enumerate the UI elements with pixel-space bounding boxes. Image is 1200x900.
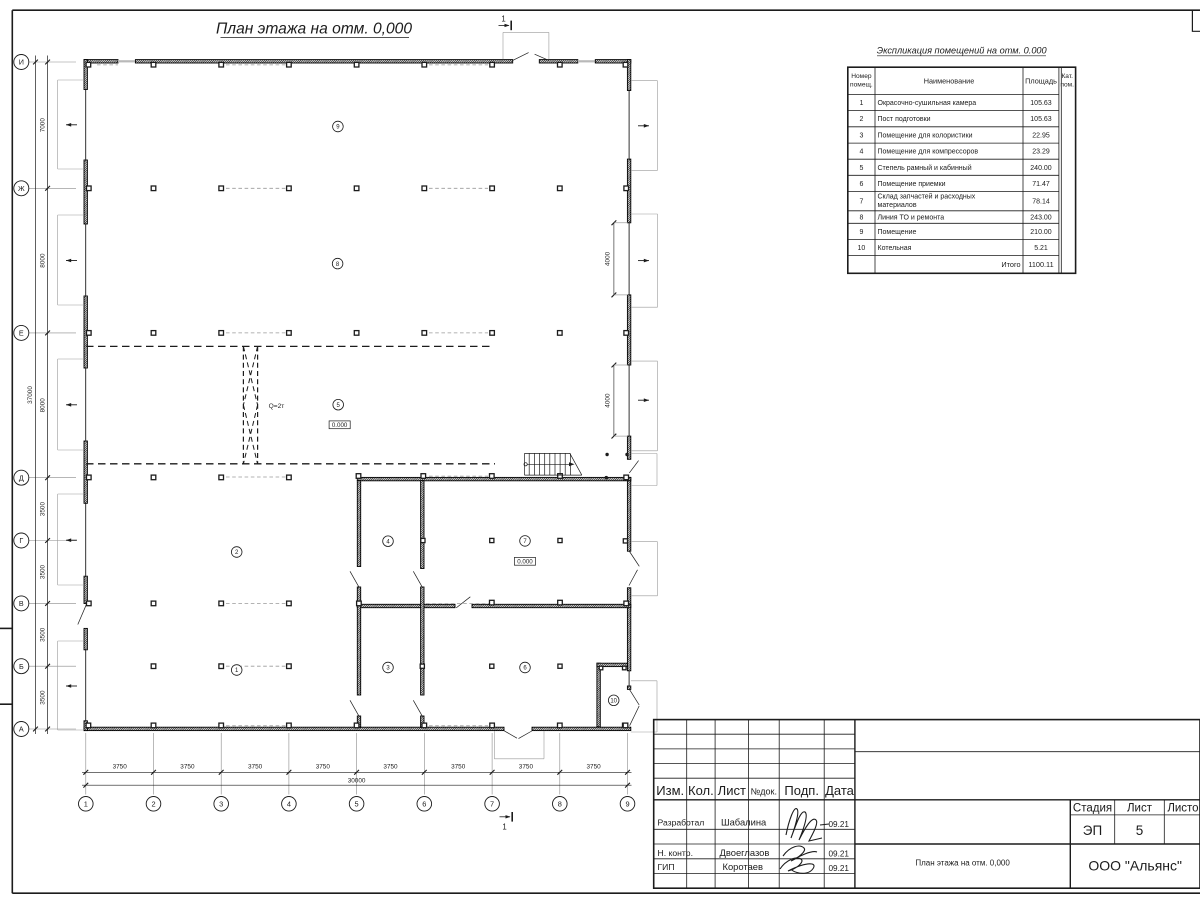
svg-text:Q=2т: Q=2т [269, 403, 285, 410]
svg-text:Помещение: Помещение [878, 229, 917, 236]
svg-text:09.21: 09.21 [829, 850, 850, 859]
svg-text:Склад запчастей и расходных: Склад запчастей и расходных [878, 193, 976, 201]
svg-text:Линия ТО и ремонта: Линия ТО и ремонта [878, 215, 945, 222]
svg-text:3750: 3750 [248, 763, 263, 770]
svg-text:240.00: 240.00 [1030, 165, 1052, 172]
svg-text:4: 4 [859, 149, 863, 156]
svg-text:1: 1 [501, 15, 505, 24]
svg-text:А: А [19, 725, 24, 734]
svg-text:ГИП: ГИП [658, 862, 675, 872]
svg-text:Площадь: Площадь [1025, 77, 1057, 86]
svg-text:78.14: 78.14 [1032, 199, 1050, 206]
svg-text:210.00: 210.00 [1030, 229, 1052, 236]
svg-text:5.21: 5.21 [1034, 245, 1048, 252]
svg-text:Помещение для компрессоров: Помещение для компрессоров [878, 149, 979, 156]
svg-text:7: 7 [859, 199, 863, 206]
svg-text:3750: 3750 [383, 763, 398, 770]
svg-text:Наименование: Наименование [924, 77, 975, 86]
svg-text:5: 5 [859, 165, 863, 172]
svg-text:8: 8 [859, 215, 863, 222]
svg-text:Степель рамный и кабинный: Степель рамный и кабинный [878, 164, 972, 172]
svg-text:Итого: Итого [1001, 260, 1020, 269]
svg-text:4: 4 [287, 800, 291, 809]
svg-text:7000: 7000 [39, 118, 46, 133]
svg-text:№док.: №док. [751, 786, 777, 796]
svg-text:Е: Е [19, 329, 24, 338]
svg-text:9: 9 [859, 229, 863, 236]
svg-text:37000: 37000 [27, 386, 34, 404]
svg-text:1: 1 [84, 800, 88, 809]
svg-text:Листов: Листов [1167, 803, 1200, 815]
svg-text:3750: 3750 [519, 763, 534, 770]
svg-text:Экспликация помещений на отм.: Экспликация помещений на отм. 0.000 [877, 45, 1048, 55]
svg-text:5: 5 [1136, 823, 1144, 838]
svg-text:1: 1 [502, 823, 506, 832]
svg-text:3: 3 [219, 800, 223, 809]
svg-text:Стадия: Стадия [1073, 803, 1112, 815]
svg-text:Ж: Ж [18, 184, 25, 193]
svg-text:Двоеглазов: Двоеглазов [720, 847, 770, 858]
svg-text:3750: 3750 [113, 763, 128, 770]
svg-text:1: 1 [859, 100, 863, 107]
svg-text:30000: 30000 [348, 777, 366, 784]
svg-text:План этажа на отм. 0,000: План этажа на отм. 0,000 [915, 859, 1010, 868]
svg-text:8: 8 [558, 800, 562, 809]
svg-text:3500: 3500 [39, 627, 46, 642]
svg-text:71.47: 71.47 [1032, 181, 1050, 188]
svg-text:4000: 4000 [605, 251, 612, 266]
svg-text:6: 6 [859, 181, 863, 188]
svg-text:ЭП: ЭП [1083, 823, 1102, 838]
svg-text:9: 9 [625, 800, 629, 809]
svg-text:2: 2 [151, 800, 155, 809]
svg-text:105.63: 105.63 [1030, 100, 1052, 107]
svg-text:09.21: 09.21 [829, 864, 850, 873]
svg-text:Г: Г [19, 536, 23, 545]
svg-text:8000: 8000 [39, 253, 46, 268]
svg-text:Дата: Дата [825, 783, 855, 798]
svg-text:Кат.: Кат. [1061, 73, 1073, 80]
svg-text:105.63: 105.63 [1030, 116, 1052, 123]
svg-text:3: 3 [859, 132, 863, 139]
svg-text:Д: Д [19, 473, 24, 482]
svg-text:Кол.: Кол. [688, 783, 714, 798]
svg-text:Подп.: Подп. [784, 783, 819, 798]
svg-text:План этажа на отм. 0,000: План этажа на отм. 0,000 [216, 21, 412, 38]
svg-text:Лист: Лист [718, 783, 746, 798]
svg-text:0.000: 0.000 [517, 559, 533, 566]
svg-text:Изм.: Изм. [656, 783, 684, 798]
svg-text:3750: 3750 [586, 763, 601, 770]
svg-text:Шабалина: Шабалина [721, 817, 767, 828]
svg-text:2: 2 [859, 116, 863, 123]
svg-text:Коротаев: Коротаев [723, 861, 764, 872]
svg-text:5: 5 [355, 800, 359, 809]
svg-text:Котельная: Котельная [878, 245, 912, 252]
svg-text:23.29: 23.29 [1032, 149, 1050, 156]
svg-text:Б: Б [19, 662, 24, 671]
svg-text:Помещение приемки: Помещение приемки [878, 181, 946, 188]
svg-text:1100.11: 1100.11 [1028, 260, 1053, 269]
svg-text:4000: 4000 [605, 393, 612, 408]
svg-text:3750: 3750 [316, 763, 331, 770]
svg-text:Помещение для колористики: Помещение для колористики [878, 132, 973, 139]
svg-text:материалов: материалов [878, 202, 917, 209]
svg-text:09.21: 09.21 [829, 820, 850, 829]
svg-text:243.00: 243.00 [1030, 215, 1052, 222]
svg-text:Окрасочно-сушильная камера: Окрасочно-сушильная камера [878, 100, 977, 107]
svg-text:Номер: Номер [851, 73, 872, 80]
svg-text:Н. контр.: Н. контр. [658, 848, 693, 858]
svg-text:10: 10 [858, 245, 866, 252]
svg-text:ООО "Альянс": ООО "Альянс" [1088, 857, 1182, 873]
svg-text:3500: 3500 [39, 564, 46, 579]
svg-text:Пост подготовки: Пост подготовки [878, 116, 931, 123]
svg-text:3500: 3500 [39, 690, 46, 705]
svg-text:пом.: пом. [1060, 82, 1074, 89]
svg-text:10: 10 [610, 699, 617, 705]
svg-text:7: 7 [490, 800, 494, 809]
svg-text:В: В [19, 599, 24, 608]
svg-text:3750: 3750 [451, 763, 466, 770]
svg-text:помещ.: помещ. [850, 82, 873, 89]
svg-text:3750: 3750 [180, 763, 195, 770]
svg-text:И: И [19, 58, 24, 67]
svg-text:6: 6 [422, 800, 426, 809]
svg-text:0.000: 0.000 [332, 422, 348, 429]
svg-text:22.95: 22.95 [1032, 132, 1050, 139]
svg-text:3500: 3500 [39, 502, 46, 517]
svg-text:8000: 8000 [39, 398, 46, 413]
svg-text:Разработал: Разработал [658, 817, 705, 827]
svg-text:Лист: Лист [1127, 803, 1153, 815]
